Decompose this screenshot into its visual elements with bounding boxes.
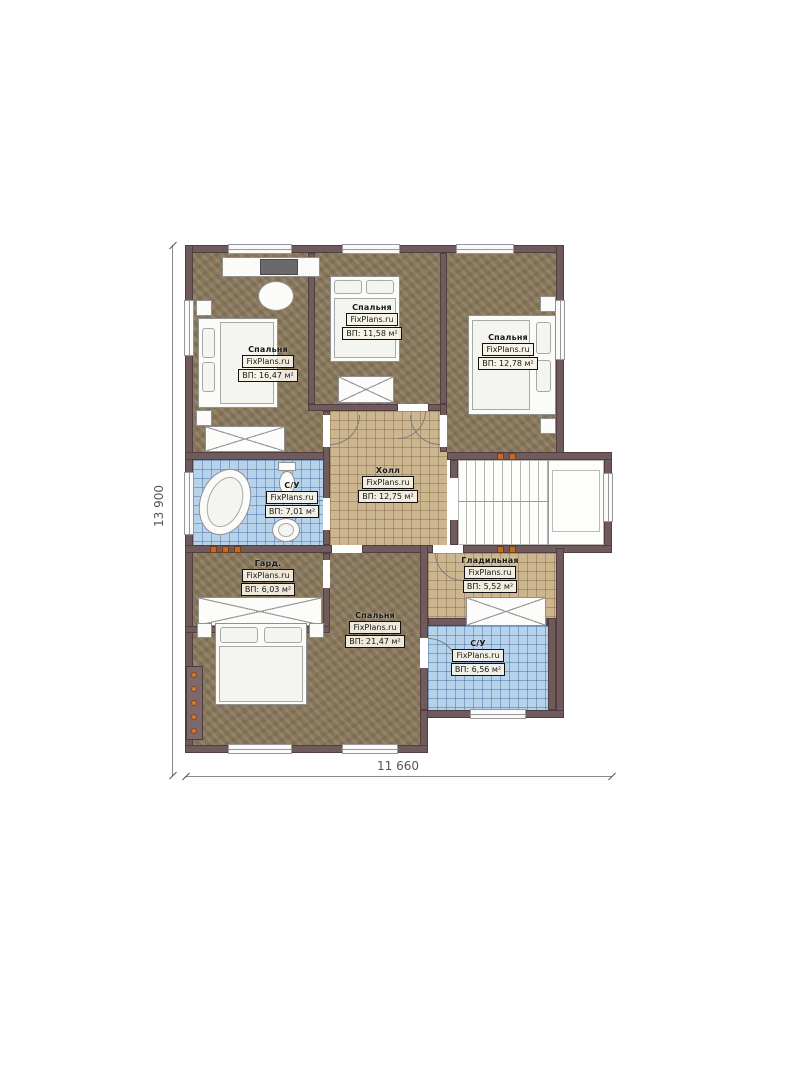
wall-bathroom-right-side	[548, 618, 556, 710]
room-label-hall: Холл FixPlans.ru ВП: 12,75 м²	[338, 466, 438, 503]
dimension-line-left	[172, 245, 173, 776]
bed-top-left-pillow-1	[202, 328, 215, 358]
window-top-2	[342, 244, 400, 254]
brand-watermark: FixPlans.ru	[464, 566, 515, 579]
window-stair-bay	[603, 473, 613, 522]
floor-plan-canvas: Спальня FixPlans.ru ВП: 16,47 м² Спальня…	[0, 0, 792, 1080]
wall-mid-top-left	[185, 452, 330, 460]
room-name: С/У	[428, 639, 528, 648]
room-area: ВП: 21,47 м²	[345, 635, 404, 648]
room-area: ВП: 6,56 м²	[451, 663, 505, 676]
room-label-bathroom-right: С/У FixPlans.ru ВП: 6,56 м²	[428, 639, 528, 676]
nightstand	[540, 418, 556, 434]
vent-mark	[509, 453, 516, 460]
room-area: ВП: 11,58 м²	[342, 327, 401, 340]
room-area: ВП: 12,78 м²	[478, 357, 537, 370]
room-name: С/У	[242, 481, 342, 490]
room-area: ВП: 6,03 м²	[241, 583, 295, 596]
dimension-label-left: 13 900	[152, 476, 166, 536]
room-label-bedroom-top-left: Спальня FixPlans.ru ВП: 16,47 м²	[218, 345, 318, 382]
wall-bedroom2-3	[440, 253, 447, 404]
door-gap-bedroom-top-left	[323, 415, 330, 447]
window-top-3	[456, 244, 514, 254]
toilet-tank	[278, 462, 296, 471]
nightstand	[309, 623, 324, 638]
dimension-label-bottom: 11 660	[348, 759, 448, 773]
wall-mid-bottom-3	[463, 545, 612, 553]
room-label-bedroom-bottom: Спальня FixPlans.ru ВП: 21,47 м²	[325, 611, 425, 648]
brand-watermark: FixPlans.ru	[362, 476, 413, 489]
stair-landing	[552, 470, 600, 532]
bed-bottom-pillow-2	[264, 627, 302, 643]
brand-watermark: FixPlans.ru	[242, 355, 293, 368]
room-label-wardrobe: Гард. FixPlans.ru ВП: 6,03 м²	[218, 559, 318, 596]
wall-bedroom2-bottom-1	[308, 404, 398, 411]
closet-ironing-room	[466, 597, 546, 626]
room-label-bedroom-top-right: Спальня FixPlans.ru ВП: 12,78 м²	[458, 333, 558, 370]
room-name: Спальня	[218, 345, 318, 354]
room-name: Спальня	[325, 611, 425, 620]
brand-watermark: FixPlans.ru	[452, 649, 503, 662]
window-left-1	[184, 300, 194, 356]
window-bottom-right	[470, 709, 526, 719]
nightstand	[197, 623, 212, 638]
room-name: Холл	[338, 466, 438, 475]
dimension-line-bottom	[185, 776, 612, 777]
wall-mid-top-right	[447, 452, 612, 460]
brand-watermark: FixPlans.ru	[482, 343, 533, 356]
sink-basin	[278, 523, 294, 537]
bed-top-middle-pillow-1	[334, 280, 362, 294]
wall-mid-bottom-1	[185, 545, 332, 553]
brand-watermark: FixPlans.ru	[242, 569, 293, 582]
vent-mark	[234, 546, 241, 553]
brand-watermark: FixPlans.ru	[346, 313, 397, 326]
chimney-flue	[191, 700, 197, 706]
vent-mark	[509, 546, 516, 553]
room-name: Спальня	[322, 303, 422, 312]
window-bottom-1	[228, 744, 292, 754]
room-area: ВП: 5,52 м²	[463, 580, 517, 593]
wall-right-lower	[556, 548, 564, 718]
door-gap-wardrobe	[323, 560, 330, 588]
closet-wardrobe	[198, 597, 322, 626]
room-label-bedroom-top-middle: Спальня FixPlans.ru ВП: 11,58 м²	[322, 303, 422, 340]
room-area: ВП: 7,01 м²	[265, 505, 319, 518]
chimney-flue	[191, 714, 197, 720]
vent-mark	[497, 546, 504, 553]
vent-mark	[210, 546, 217, 553]
bed-bottom-blanket	[219, 646, 303, 702]
room-label-bathroom-left: С/У FixPlans.ru ВП: 7,01 м²	[242, 481, 342, 518]
nightstand	[196, 300, 212, 316]
dimension-tick	[169, 242, 177, 250]
laptop	[260, 259, 298, 275]
bed-top-middle-pillow-2	[366, 280, 394, 294]
nightstand	[196, 410, 212, 426]
closet-bedroom-top-left	[205, 426, 285, 452]
chimney-flue	[191, 686, 197, 692]
vent-mark	[222, 546, 229, 553]
bed-top-left-pillow-2	[202, 362, 215, 392]
room-area: ВП: 12,75 м²	[358, 490, 417, 503]
stair-treads	[458, 460, 548, 545]
window-bottom-2	[342, 744, 398, 754]
vent-mark	[497, 453, 504, 460]
dimension-tick	[169, 772, 177, 780]
stair-mid-line	[458, 501, 548, 502]
bed-bottom-pillow-1	[220, 627, 258, 643]
brand-watermark: FixPlans.ru	[266, 491, 317, 504]
closet-bedroom-top-middle	[338, 376, 394, 403]
nightstand	[540, 296, 556, 312]
desk-chair	[258, 281, 294, 311]
opening-stairs	[450, 478, 458, 520]
brand-watermark: FixPlans.ru	[349, 621, 400, 634]
door-gap-bedroom-top-right	[440, 415, 447, 447]
window-left-2	[184, 472, 194, 535]
chimney-flue	[191, 728, 197, 734]
room-name: Гладильная	[440, 556, 540, 565]
chimney-flue	[191, 672, 197, 678]
window-top-1	[228, 244, 292, 254]
room-name: Спальня	[458, 333, 558, 342]
room-area: ВП: 16,47 м²	[238, 369, 297, 382]
room-name: Гард.	[218, 559, 318, 568]
room-label-ironing-room: Гладильная FixPlans.ru ВП: 5,52 м²	[440, 556, 540, 593]
stair-rail	[548, 460, 549, 545]
